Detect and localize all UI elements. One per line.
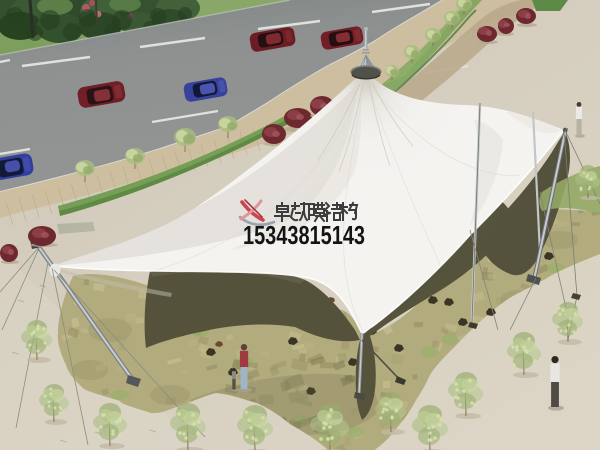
svg-text:15343815143: 15343815143 bbox=[243, 220, 365, 250]
